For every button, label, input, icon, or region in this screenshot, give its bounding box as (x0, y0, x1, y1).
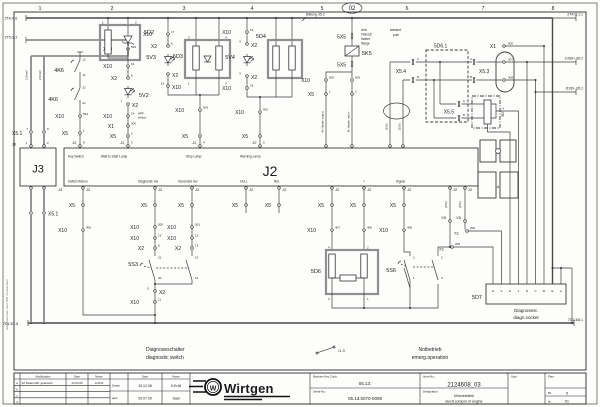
component-label: 5D6 (311, 269, 321, 275)
ref-top-right: 2T4:/8.1:1 (567, 13, 583, 17)
mod-header-modification: Modification (36, 375, 51, 379)
relay-coil-label: 5K5 (362, 51, 372, 57)
connector-label: X1 (490, 44, 496, 50)
appr-date: 09.07.09 (138, 397, 152, 401)
j2-pin-function: Wait to Start Lamp (101, 155, 128, 159)
pin-number: 502 (263, 108, 268, 112)
led-label: 5V2 (139, 93, 149, 99)
connector-label: X10 (130, 300, 139, 306)
pin-number: 21 (158, 256, 162, 260)
plan-label: Plan: (548, 375, 555, 379)
pin-number: 1 (367, 297, 369, 301)
pin-number: 16 (131, 62, 135, 66)
switch-label: 5S6 (386, 268, 396, 274)
socket-pin-letter: H (509, 289, 511, 293)
pin-number: 506 (355, 76, 360, 80)
sheet-label: Bl. (548, 391, 551, 395)
j2-pin-function: - (331, 180, 332, 184)
unit-ref: J3 (12, 142, 17, 147)
key-switch-circuit: 4K6 12 11 4K6 22 21 X10 594 X5 1 J2 8 (48, 52, 88, 147)
connector-label: X2 (111, 76, 117, 82)
connector-label: X2 (175, 246, 181, 252)
connector-label: X10 (58, 228, 67, 234)
heater-note: heater (361, 37, 371, 41)
socket-pin-letter: A (560, 289, 562, 293)
pin-number: 4 (328, 246, 330, 250)
drawn-label: Drawn (112, 384, 121, 388)
j2-pin-function: Diagnostic Sw (138, 180, 159, 184)
wirtgen-logo: W Wirtgen (189, 379, 290, 400)
column-number: 8 (552, 6, 555, 12)
ident-label: Ident-No.: (423, 375, 436, 379)
pin-number: 407 (335, 226, 340, 230)
j2-pin-function: Out.L (240, 180, 248, 184)
appr-name: Saal (172, 397, 179, 401)
socket-pin-letter: B (543, 289, 545, 293)
serial-value: 05.13.0070-0095 (348, 396, 383, 401)
j2-pin-function: Switch Return (68, 180, 88, 184)
pin-number: 408 (407, 226, 412, 230)
ref-heater: Bildung .05.2 (306, 13, 325, 17)
pin-number: 7 (26, 127, 28, 131)
pin-number: 12 (83, 58, 87, 62)
pin-number: 300 (508, 42, 513, 46)
component-label: 5D6.1 (434, 44, 448, 50)
pin-number: 8 (131, 74, 133, 78)
pin-number: 300 (131, 122, 136, 126)
connector-label: X10 (130, 225, 139, 231)
pin-number: 13 (195, 256, 199, 260)
connector-label: X5 (350, 203, 356, 209)
pin-letter: B (470, 75, 472, 79)
connector-label: X5.4 (396, 69, 407, 75)
connector-label: X1 (454, 231, 460, 236)
connector-view-grid (500, 172, 518, 198)
pin-number: 400 (86, 226, 91, 230)
pin-number: 4 (203, 141, 205, 145)
connector-label: X5 (69, 203, 75, 209)
pin-number: 1 (413, 276, 415, 280)
pin-number: 501 (195, 223, 200, 227)
caption-diagnostic-de: Diagnoseschalter (146, 347, 185, 353)
pin-number: 1 (329, 90, 331, 94)
pin-number: 2 (47, 141, 49, 145)
bottom-captions: Diagnoseschalter diagnostic switch /1.3 … (146, 346, 448, 361)
of-label: sh. (548, 399, 552, 403)
connector-label: X2 (151, 44, 157, 50)
emergency-operation-circuit: J2 X5 X10 407 J2 X5 406 5D6 4 2 3 1 J2 X… (307, 187, 443, 309)
note-twisted-pair: twisted (390, 28, 401, 32)
connector-view-grid (478, 172, 496, 198)
connector-label: J2 (249, 187, 254, 192)
j2-pin-function: Signal (396, 180, 405, 184)
connector-label: X5.5 (444, 110, 455, 116)
pin-number: 11 (83, 73, 86, 77)
pin-number: 5 (263, 141, 265, 145)
caption-emerg-en: emerg.operation (412, 355, 449, 361)
caption-diagnostic-en: diagnostic switch (146, 355, 184, 361)
drawn-header-date: Date (142, 375, 148, 379)
connector-label: X5.1 (48, 212, 59, 218)
connector-label: X10 (167, 225, 176, 231)
schematic-page: 1 2 3 4 5 6 7 8 02 Schutzvermerk nach DI… (0, 0, 600, 407)
connector-label: J2 (120, 140, 125, 145)
pin-number: 11 (158, 298, 161, 302)
pin-number: 406 (367, 226, 372, 230)
pin-number: 307 (508, 58, 513, 62)
pin-letter: A (470, 57, 472, 61)
pin-number: 14 (195, 276, 199, 280)
pin-number: 2 (131, 132, 133, 136)
socket-feed-circuit: J2 J2 (150) (150) X5 X5 X1 206 X1 205 (438, 187, 502, 284)
of-value: 51 (565, 400, 569, 404)
connector-label: X10 (301, 78, 310, 84)
socket-caption-en: diagn.socket (513, 315, 539, 320)
ref-top-left-1: 2T4:/4.6 (5, 17, 18, 21)
connector-label: X2 (251, 75, 257, 81)
led-label: 5V4 (225, 55, 235, 61)
column-number: 7 (482, 6, 485, 12)
connector-view-letter: A (497, 184, 500, 189)
connector-label: X10 (222, 86, 231, 92)
j2-pin-function: Ret. (274, 180, 280, 184)
connector-view-hatched (480, 140, 496, 162)
pin-number: 3 (131, 141, 133, 145)
ref-can-minus: J1939- /26.2 (565, 87, 583, 91)
connector-label: X5 (232, 203, 238, 209)
unit-ref: J3 (58, 187, 63, 192)
wire-gauge: 2,5mm² (25, 70, 29, 80)
connector-view-hatched (500, 140, 516, 162)
title-block: Modification Date Name a S2 Relais Abfr.… (14, 373, 586, 404)
socket-pin-letter: G (492, 289, 495, 293)
connector-label: X5 (441, 215, 447, 220)
column-number: 4 (251, 6, 254, 12)
connector-face-views: A (478, 140, 518, 198)
connector-label: X1 (108, 124, 114, 130)
connector-label: X2 (138, 246, 144, 252)
connector-label: X5 (265, 203, 271, 209)
pin-number: 2 (441, 256, 443, 260)
ref-top-left-2: 2T5:/2.2 (5, 36, 18, 40)
ident-value: 2124608_03 (447, 383, 481, 389)
wire-ref: (150) (398, 123, 402, 130)
pin-number: 19 (250, 28, 254, 32)
socket-pin-letter: J (518, 289, 520, 293)
pin-number: 8 (47, 127, 49, 131)
connector-label: X5 (110, 134, 116, 140)
connector-label: X10 (172, 85, 181, 91)
heater-note: Flansch (361, 33, 372, 37)
pin-number: 8 (158, 244, 160, 248)
pin-number: 8 (83, 141, 85, 145)
pin-number: 593 (131, 45, 136, 49)
designation-de: Motorelektrik (454, 394, 474, 398)
j2-pin-function: Stop Lamp (186, 155, 202, 159)
socket-pin-letter: D (526, 289, 529, 293)
pin-letter: A (417, 57, 419, 61)
pin-number: 3 (225, 82, 227, 86)
connector-label: X5 (308, 92, 314, 98)
column-number: 5 (321, 6, 324, 12)
wire-ref: (150) (385, 123, 389, 130)
pin-number: 3 (441, 276, 443, 280)
ref-bottom-right: 7D1:3/8.1 (568, 318, 583, 322)
connector-label: J2 (252, 140, 257, 145)
pin-number: 1 (188, 82, 190, 86)
wire-color-en: yellow (138, 116, 147, 120)
pin-number: 2 (413, 256, 415, 260)
socket-caption-de: Diagnosest. (514, 308, 538, 313)
connector-label: X5 (390, 203, 396, 209)
heater-note: Anti- (361, 28, 368, 32)
pin-number: 503 (203, 106, 208, 110)
relay-contact-label: 4K6 (48, 97, 58, 103)
component-label: 5D4 (256, 34, 266, 40)
wirtgen-gear-letter: W (210, 386, 217, 393)
drawn-header-name: Name (172, 375, 180, 379)
connector-label: X2 (172, 73, 178, 79)
switch-label: 5S3 (128, 262, 138, 268)
j2-pin-function: + (363, 180, 365, 184)
connector-label: X10 (143, 32, 152, 38)
connector-label: X5.3 (479, 69, 490, 75)
serial-label: Serial-No.: (313, 390, 326, 394)
column-number: 6 (406, 6, 409, 12)
connector-label: X5 (456, 215, 462, 220)
connector-label: X5 (62, 131, 68, 137)
connector-label: X10 (175, 108, 184, 114)
connector-label: J2 (453, 187, 458, 192)
pin-number: 1 (25, 141, 27, 145)
connector-label: X5 (178, 203, 184, 209)
connector-label: X5 (182, 134, 188, 140)
connector-label: X5 (141, 203, 147, 209)
connector-label: X10 (167, 236, 176, 242)
can-bus-circuit: twisted pair X5.4 A B (150) (150) 5D6.1 … (384, 28, 584, 284)
designation-en: electr.compon.of engine (445, 400, 482, 404)
connector-label: J2 (407, 187, 412, 192)
diagnosis-socket: 5D7 G F H J D C B E A Diagnosest. diagn.… (472, 267, 572, 323)
pin-letter: B (417, 75, 419, 79)
mod-row-letter: a (16, 381, 18, 385)
led-label: 5V3 (146, 55, 156, 61)
heater-note: flange (361, 42, 370, 46)
connector-label: X5.1 (12, 131, 23, 137)
column-number: 3 (183, 6, 186, 12)
designation-label: Designation: (423, 390, 439, 394)
mod-row-letter: d (16, 400, 18, 404)
note-twisted-pair: pair (393, 33, 400, 37)
unit-j2-label: J2 (263, 163, 278, 179)
connector-label: X2 (132, 103, 138, 109)
drawn-date: 15.12.08 (138, 384, 152, 388)
pin-number: 15 (158, 234, 162, 238)
component-label: 5D3 (173, 54, 183, 60)
column-number: 2 (111, 6, 114, 12)
socket-pin-letter: C (534, 289, 537, 293)
pin-number: 22 (83, 86, 87, 90)
pin-number: 6 (171, 42, 173, 46)
connector-label: X2 (159, 290, 165, 296)
pin-letter: B (463, 113, 465, 117)
connector-label: J2 (468, 187, 473, 192)
j2-pin-function: Increment Sw (178, 180, 198, 184)
appr-label: appr. (112, 396, 118, 400)
pin-number: 2 (355, 90, 357, 94)
wire-color-de: gelb (138, 111, 144, 115)
connector-label: J2 (86, 187, 91, 192)
pin-number: 5 (239, 72, 241, 76)
connector-label: X10 (103, 64, 112, 70)
connector-label: X5 (318, 203, 324, 209)
wire-function: Air Heater return (347, 111, 351, 132)
wire-ref: (150) (458, 201, 462, 208)
wire-ref: (150) (444, 201, 448, 208)
connector-label: X10 (307, 228, 316, 234)
pin-number: 7 (120, 100, 122, 104)
pin-number: 20 (158, 276, 162, 280)
sheet-badge: 02 (349, 6, 356, 12)
pin-number: 21 (83, 101, 87, 105)
relay-contact-label: 4K6 (54, 68, 64, 74)
machine-key-value: 05.13. (359, 381, 372, 386)
mod-row-name: H.Kröll (95, 381, 104, 385)
lamp-output-stubs: J2 X5 J2 X5 (232, 187, 287, 213)
mod-row-date: 23.03.09 (72, 381, 83, 385)
component-label: 5D7.1 (501, 107, 505, 116)
drawing-frame: 1 2 3 4 5 6 7 8 02 Schutzvermerk nach DI… (3, 3, 597, 404)
heater-flange-circuit: 5X5 Anti- Flansch heater flange 5K5 5X5 … (301, 18, 372, 147)
wire-function: Air Heater output (321, 111, 325, 132)
mod-row-letter: b (16, 388, 18, 392)
pin-number: 308 (508, 76, 513, 80)
machine-key-label: Machine Key Code: (313, 375, 338, 379)
pin-number: 205 (455, 242, 460, 246)
connector-label: X10 (55, 114, 64, 120)
unit-j3: J3 J3 X5.1 (20, 148, 63, 323)
column-number: 1 (39, 6, 42, 12)
warning-lamp-circuit: X10 19 6 X2 5V4 5 X2 X10 18 5D4 X10 502 … (222, 18, 302, 147)
pin-number: 6 (239, 40, 241, 44)
drawn-name: K.Kröll (171, 384, 182, 388)
pin-number: 5 (147, 287, 149, 291)
pin-letter: A (463, 99, 465, 103)
connector-label: 5X5 (337, 35, 346, 41)
wirtgen-wordmark: Wirtgen (224, 381, 274, 396)
ref-can-plus: J1939+ /26.2 (564, 57, 583, 61)
sheet-value: 5 (566, 392, 568, 396)
pin-number: 505 (329, 76, 334, 80)
pin-number: 13 (195, 234, 199, 238)
unit-j2: J2 Key Switch Wait to Start Lamp Stop La… (64, 148, 478, 186)
connector-label: J2 (335, 187, 340, 192)
wire-gauge: 2,5mm² (38, 70, 42, 80)
ref-bottom-left: 7D1:3/1.8 (3, 322, 18, 326)
connector-label: X5 (242, 134, 248, 140)
socket-pin-letter: E (551, 289, 553, 293)
j2-pin-function: Key Switch (68, 155, 84, 159)
mod-row-letter: c (16, 394, 18, 398)
pin-number: 500 (158, 223, 163, 227)
connector-label: J2 (282, 187, 287, 192)
connector-label: X2 (251, 43, 257, 49)
connector-label: X10 (235, 110, 244, 116)
unit-j3-label: J3 (32, 164, 44, 176)
connector-label: X10 (130, 236, 139, 242)
connector-label: J2 (195, 187, 200, 192)
pin-number: 17 (171, 30, 175, 34)
connector-label: 5X5 (337, 63, 346, 69)
j2-pin-function: Warning Lamp (240, 155, 261, 159)
spot-label: Spot: (511, 375, 518, 379)
connector-label: X10 (103, 114, 112, 120)
connector-label: J2 (367, 187, 372, 192)
pin-number: 1 (83, 129, 85, 133)
mod-row-text: S2 Relais Abfr. getauscht (22, 381, 53, 385)
connector-label: J2 (158, 187, 163, 192)
pin-number: 594 (83, 112, 88, 116)
component-label: 5D7 (472, 295, 482, 301)
pin-number: 18 (250, 84, 254, 88)
socket-pin-letter: F (501, 289, 503, 293)
mod-header-name: Name (95, 375, 103, 379)
pin-number: 15 (161, 82, 165, 86)
connector-label: J2 (192, 140, 197, 145)
diagnostic-switch-circuit: J2 X5 X10 500 X10 15 X2 8 21 20 5S3 J2 X… (128, 187, 200, 323)
stop-lamp-circuit: X10 17 X2 6 5V3 X2 15 X10 5D3 2 4 1 3 X1… (143, 18, 230, 147)
connector-label: J2 (72, 140, 77, 145)
pin-number: 2 (367, 246, 369, 250)
connector-label: X10 (222, 30, 231, 36)
pin-number: 3 (328, 297, 330, 301)
pin-number: 206 (470, 226, 475, 230)
caption-emerg-de: Notbetrieb (418, 347, 441, 353)
mod-header-date: Date (74, 375, 80, 379)
pin-number: 13 (195, 244, 199, 248)
ref-emerg: /1.3 (338, 348, 345, 353)
connector-label: X10 (379, 228, 388, 234)
pin-number: 14 (131, 112, 135, 116)
schematic-canvas: 1 2 3 4 5 6 7 8 02 Schutzvermerk nach DI… (0, 0, 600, 407)
